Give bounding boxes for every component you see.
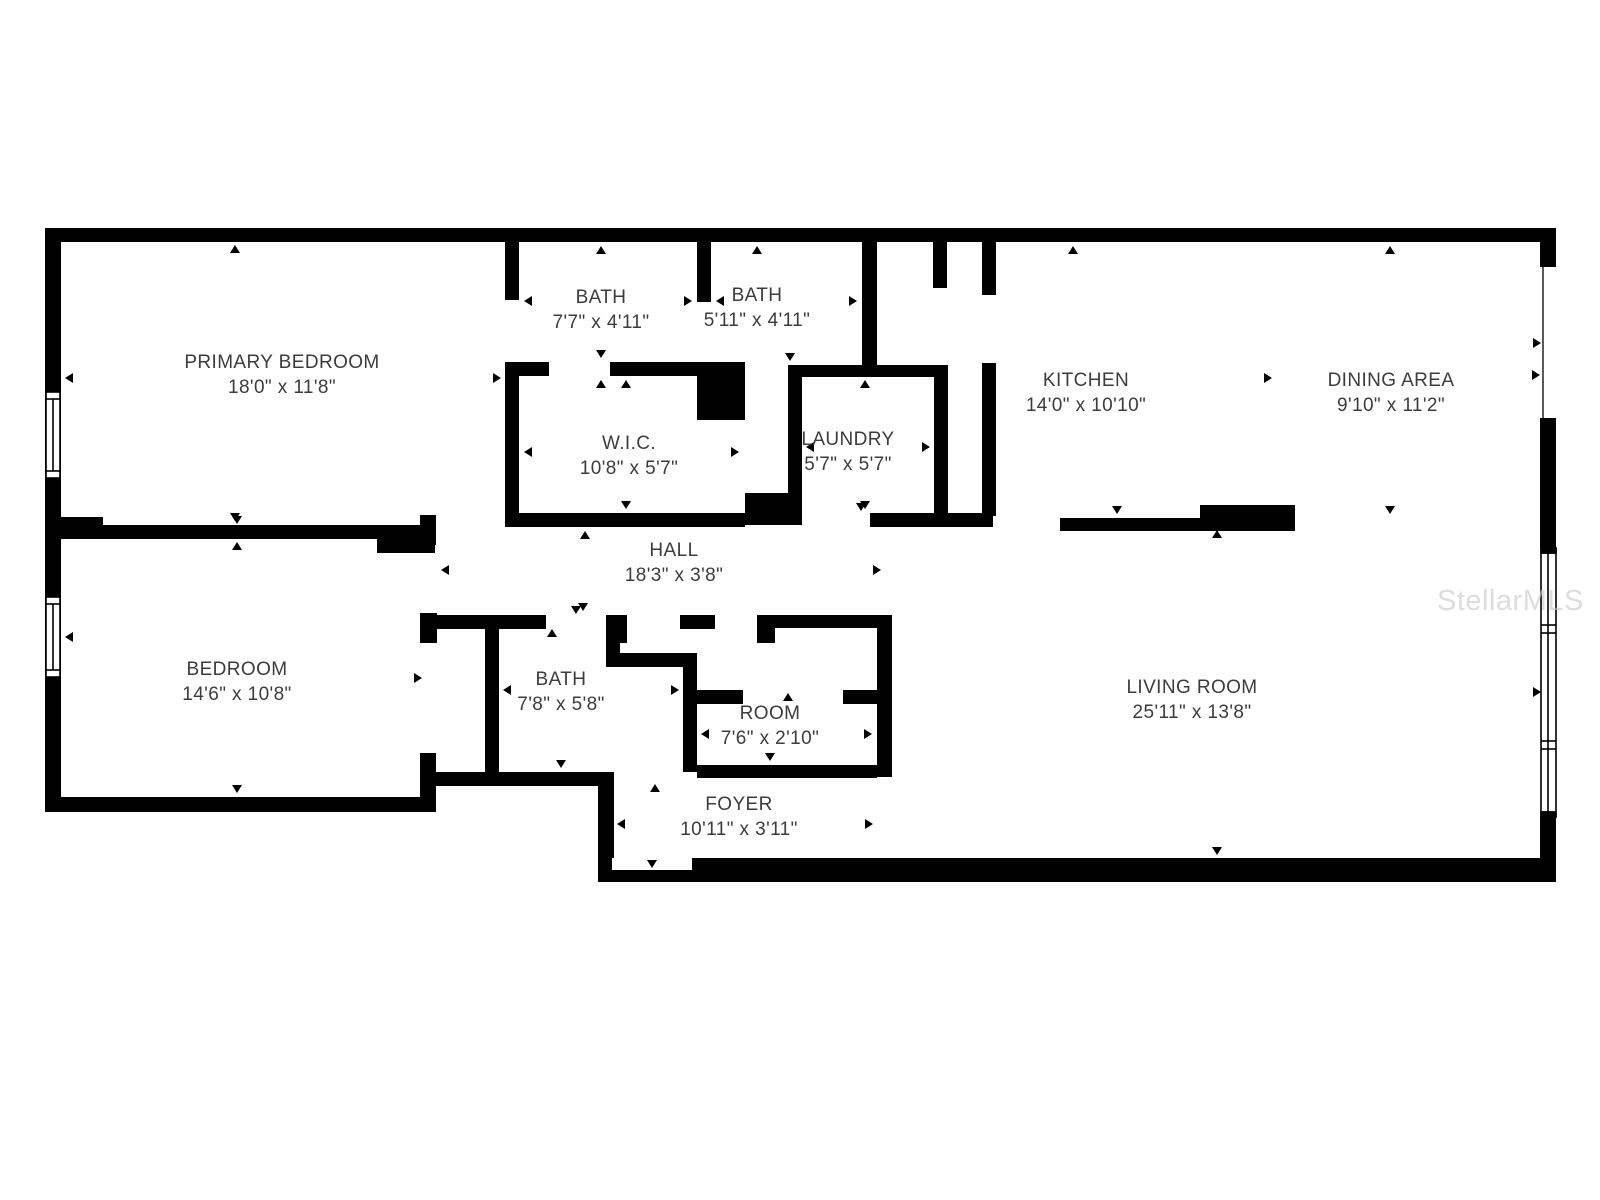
room-label-primary-bedroom: PRIMARY BEDROOM 18'0" x 11'8"	[184, 350, 379, 400]
room-label-kitchen: KITCHEN 14'0" x 10'10"	[1026, 368, 1146, 418]
dimension-arrow	[1385, 246, 1395, 254]
wall	[697, 765, 877, 778]
wall	[745, 493, 802, 525]
room-dims: 14'6" x 10'8"	[182, 682, 291, 707]
room-name: KITCHEN	[1043, 370, 1129, 391]
wall	[45, 797, 436, 812]
room-name: LIVING ROOM	[1126, 677, 1257, 698]
dimension-arrow	[1068, 246, 1078, 254]
room-name: ROOM	[740, 703, 801, 724]
dimension-arrow	[65, 373, 73, 383]
wall	[1540, 242, 1556, 267]
wall	[1540, 418, 1556, 548]
dimension-arrow	[621, 501, 631, 509]
dimension-arrow	[232, 785, 242, 793]
wall	[505, 362, 519, 517]
dimension-arrow	[547, 629, 557, 637]
dimension-arrow	[849, 296, 857, 306]
dimension-arrow	[860, 380, 870, 388]
room-label-wic: W.I.C. 10'8" x 5'7"	[580, 431, 678, 481]
wall	[436, 615, 546, 629]
wall	[788, 365, 948, 377]
wall	[934, 365, 948, 523]
dimension-arrow	[701, 729, 709, 739]
room-dims: 10'8" x 5'7"	[580, 456, 678, 481]
dimension-arrow	[596, 246, 606, 254]
dimension-arrow	[752, 246, 762, 254]
dimension-arrow	[232, 516, 242, 524]
wall	[982, 242, 996, 295]
dimension-arrow	[783, 693, 793, 701]
room-label-bedroom: BEDROOM 14'6" x 10'8"	[182, 657, 291, 707]
dimension-arrow	[232, 542, 242, 550]
dimension-arrow	[596, 350, 606, 358]
wall	[982, 363, 996, 516]
dimension-arrow	[493, 373, 501, 383]
wall	[1060, 518, 1200, 531]
room-label-hall: HALL 18'3" x 3'8"	[625, 538, 723, 588]
wall	[598, 772, 614, 878]
room-name: PRIMARY BEDROOM	[184, 352, 379, 373]
room-name: BATH	[732, 285, 783, 306]
room-dims: 18'0" x 11'8"	[184, 375, 379, 400]
room-dims: 5'11" x 4'11"	[704, 308, 811, 333]
wall	[683, 653, 697, 772]
floorplan-drawing	[0, 0, 1600, 1200]
wall	[1200, 505, 1295, 531]
room-label-living-room: LIVING ROOM 25'11" x 13'8"	[1126, 675, 1257, 725]
wall	[45, 525, 435, 539]
wall	[45, 228, 1556, 242]
dimension-arrow	[230, 245, 240, 253]
dimension-arrow	[1532, 370, 1540, 380]
room-name: LAUNDRY	[801, 429, 894, 450]
wall	[933, 242, 947, 288]
wall	[598, 858, 1556, 882]
dimension-arrow	[1212, 847, 1222, 855]
room-dims: 7'6" x 2'10"	[721, 726, 819, 751]
room-dims: 14'0" x 10'10"	[1026, 393, 1146, 418]
dimension-arrow	[441, 565, 449, 575]
dimension-arrow	[1264, 373, 1272, 383]
dimension-arrow	[414, 673, 422, 683]
room-dims: 9'10" x 11'2"	[1328, 393, 1455, 418]
room-name: BATH	[536, 669, 587, 690]
dimension-arrow	[650, 784, 660, 792]
wall	[519, 362, 549, 376]
dimension-arrow	[1212, 530, 1222, 538]
room-label-room: ROOM 7'6" x 2'10"	[721, 701, 819, 751]
wall	[680, 615, 715, 629]
dimension-arrow	[621, 380, 631, 388]
dimension-arrow	[571, 606, 581, 614]
room-name: HALL	[649, 540, 698, 561]
wall	[505, 242, 519, 300]
floorplan-canvas: PRIMARY BEDROOM 18'0" x 11'8" BATH 7'7" …	[0, 0, 1600, 1200]
dimension-arrow	[1385, 506, 1395, 514]
dimension-arrow	[864, 729, 872, 739]
room-name: DINING AREA	[1328, 370, 1455, 391]
dimension-arrow	[873, 565, 881, 575]
wall	[757, 615, 775, 643]
wall	[420, 772, 613, 786]
room-dims: 10'11" x 3'11"	[680, 817, 798, 842]
room-name: W.I.C.	[602, 433, 656, 454]
dimension-arrow	[596, 380, 606, 388]
dimension-arrow	[785, 353, 795, 361]
dimension-arrow	[617, 819, 625, 829]
watermark: StellarMLS	[1437, 585, 1584, 618]
wall	[775, 615, 892, 628]
wall	[610, 362, 697, 376]
dimension-arrow	[922, 442, 930, 452]
wall	[420, 515, 436, 545]
room-label-foyer: FOYER 10'11" x 3'11"	[680, 792, 798, 842]
dimension-arrow	[524, 296, 532, 306]
room-label-bath-3: BATH 7'8" x 5'8"	[517, 667, 604, 717]
wall	[420, 613, 437, 643]
dimension-arrow	[765, 753, 775, 761]
window	[46, 597, 60, 677]
dimension-arrow	[671, 685, 679, 695]
wall	[505, 513, 745, 527]
room-label-laundry: LAUNDRY 5'7" x 5'7"	[801, 427, 894, 477]
wall	[697, 362, 745, 420]
wall	[870, 513, 993, 527]
dimension-arrow	[1533, 338, 1541, 348]
dimension-arrow	[65, 632, 73, 642]
room-dims: 5'7" x 5'7"	[801, 452, 894, 477]
dimension-arrow	[580, 531, 590, 539]
room-name: BATH	[576, 287, 627, 308]
wall	[862, 242, 877, 365]
dimension-arrow	[865, 819, 873, 829]
room-dims: 7'7" x 4'11"	[552, 310, 649, 335]
room-name: FOYER	[705, 794, 772, 815]
dimension-arrow	[1533, 687, 1541, 697]
dimension-arrow	[503, 685, 511, 695]
room-dims: 7'8" x 5'8"	[517, 692, 604, 717]
room-dims: 25'11" x 13'8"	[1126, 700, 1257, 725]
wall	[485, 628, 499, 773]
room-dims: 18'3" x 3'8"	[625, 563, 723, 588]
dimension-arrow	[684, 296, 692, 306]
dimension-arrow	[731, 447, 739, 457]
dimension-arrow	[1112, 506, 1122, 514]
window	[46, 392, 60, 478]
dimension-arrow	[556, 760, 566, 768]
room-label-dining-area: DINING AREA 9'10" x 11'2"	[1328, 368, 1455, 418]
dimension-arrow	[524, 447, 532, 457]
room-label-bath-2: BATH 5'11" x 4'11"	[704, 283, 811, 333]
room-label-bath-1: BATH 7'7" x 4'11"	[552, 285, 649, 335]
wall	[877, 618, 892, 777]
room-name: BEDROOM	[187, 659, 288, 680]
